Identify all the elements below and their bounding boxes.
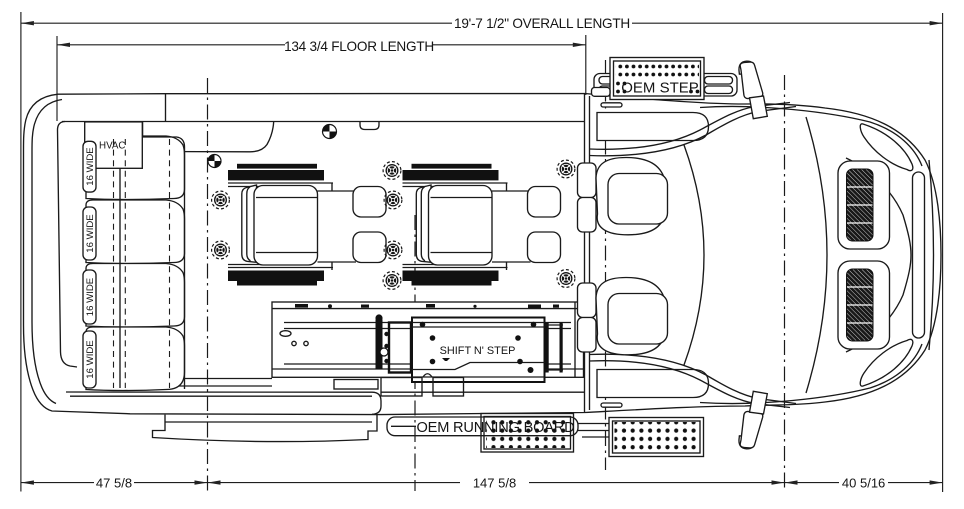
svg-text:16 WIDE: 16 WIDE	[85, 147, 96, 185]
svg-text:SHIFT N' STEP: SHIFT N' STEP	[440, 345, 516, 357]
svg-text:OEM STEP: OEM STEP	[621, 80, 699, 97]
svg-text:16 WIDE: 16 WIDE	[85, 278, 96, 316]
svg-text:OEM RUNNING BOARD: OEM RUNNING BOARD	[417, 420, 575, 436]
svg-text:47 5/8: 47 5/8	[96, 476, 132, 491]
svg-text:134 3/4 FLOOR LENGTH: 134 3/4 FLOOR LENGTH	[284, 39, 434, 54]
svg-text:16 WIDE: 16 WIDE	[85, 340, 96, 378]
svg-text:147 5/8: 147 5/8	[473, 476, 516, 491]
svg-text:16 WIDE: 16 WIDE	[85, 214, 96, 252]
svg-text:HVAC: HVAC	[99, 141, 126, 152]
svg-text:40 5/16: 40 5/16	[842, 476, 885, 491]
svg-text:19'-7 1/2" OVERALL LENGTH: 19'-7 1/2" OVERALL LENGTH	[454, 16, 630, 31]
